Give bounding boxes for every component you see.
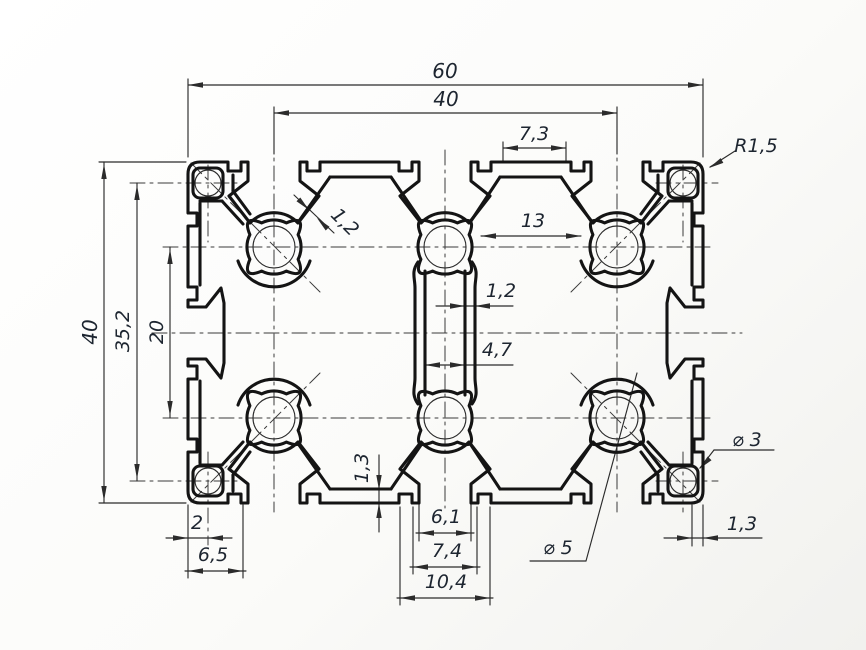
- dim-diagonal-wall: 1,2: [326, 204, 363, 241]
- dim-slot-opening: 6,1: [431, 506, 461, 528]
- dim-total-height: 40: [78, 319, 102, 344]
- dimension-labels: 60 40 7,3 R1,5 13 1,2 1,2 4,7 40 35,2 20…: [78, 59, 778, 593]
- dim-slot-pitch-height: 20: [146, 320, 168, 344]
- dim-edge-to-corner-hole: 2: [191, 512, 203, 534]
- dim-slot-recess-width: 10,4: [425, 571, 467, 593]
- dim-corner-ear-width: 6,5: [198, 544, 228, 566]
- dim-bottom-wall: 1,3: [351, 453, 373, 483]
- dim-corner-hole-diameter: ⌀ 3: [732, 429, 762, 451]
- dim-channel-width: 4,7: [482, 339, 512, 361]
- dim-center-wall: 1,2: [486, 280, 516, 302]
- dim-right-edge-wall: 1,3: [727, 513, 757, 535]
- dim-boss-clearance: 13: [521, 210, 545, 232]
- dim-slot-pitch-width: 40: [433, 87, 458, 111]
- drawing-sheet: 60 40 7,3 R1,5 13 1,2 1,2 4,7 40 35,2 20…: [0, 0, 866, 650]
- dim-corner-hole-pitch: 35,2: [112, 310, 134, 352]
- dim-core-hole-diameter: ⌀ 5: [543, 537, 573, 559]
- dim-top-cavity-width: 7,3: [519, 123, 549, 145]
- dim-total-width: 60: [432, 59, 457, 83]
- dim-slot-lip-width: 7,4: [432, 540, 462, 562]
- technical-drawing: 60 40 7,3 R1,5 13 1,2 1,2 4,7 40 35,2 20…: [0, 0, 866, 650]
- dim-corner-radius: R1,5: [734, 135, 777, 157]
